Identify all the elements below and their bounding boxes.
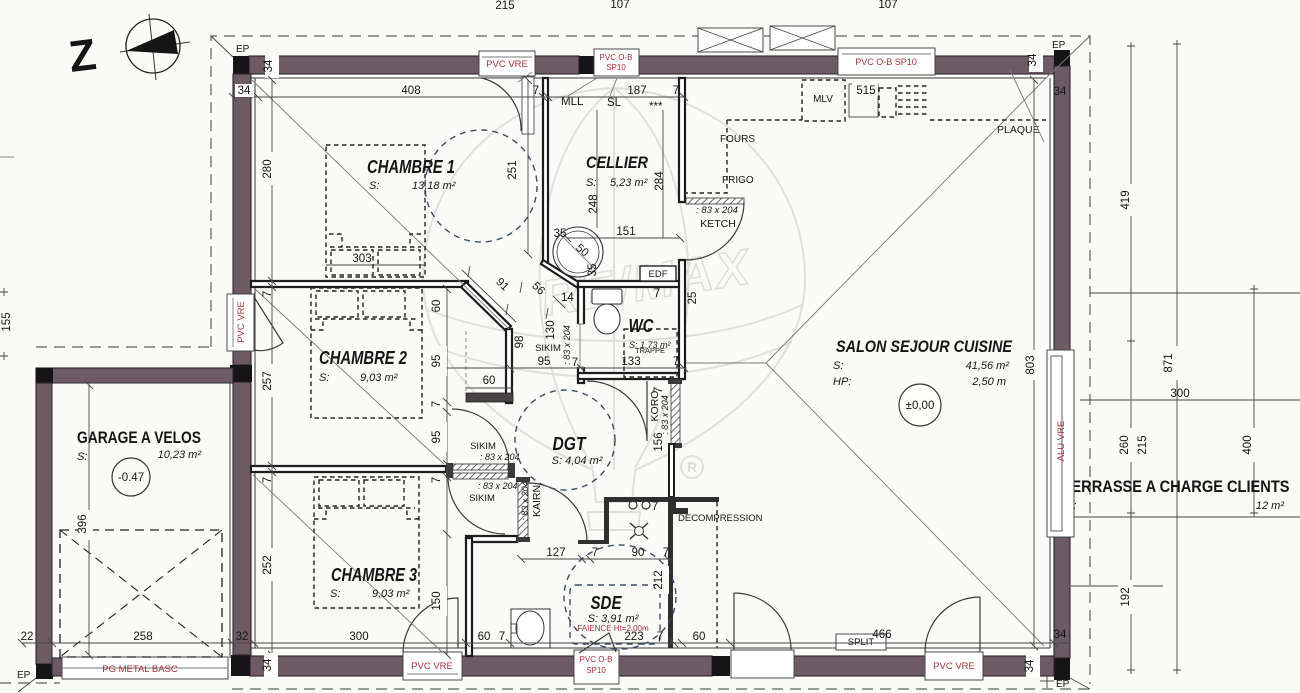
- svg-text:S:: S:: [77, 451, 87, 463]
- svg-text:215: 215: [1137, 435, 1149, 454]
- svg-text:SDE: SDE: [591, 593, 623, 613]
- svg-text:107: 107: [610, 0, 629, 11]
- svg-text:SIKIM: SIKIM: [470, 441, 496, 452]
- svg-text:FOURS: FOURS: [720, 134, 755, 145]
- svg-text:13,18 m²: 13,18 m²: [412, 180, 456, 192]
- svg-text:151: 151: [616, 226, 635, 238]
- svg-text:EP: EP: [17, 670, 31, 681]
- svg-text:34: 34: [262, 658, 274, 671]
- svg-text:: 83 x 204: : 83 x 204: [480, 452, 520, 462]
- svg-text:7: 7: [673, 85, 679, 97]
- svg-text:PG METAL BASC: PG METAL BASC: [102, 664, 178, 675]
- svg-text:S:: S:: [369, 180, 379, 192]
- svg-text:SALON SEJOUR CUISINE: SALON SEJOUR CUISINE: [836, 338, 1013, 356]
- svg-text:60: 60: [693, 631, 706, 643]
- svg-text:127: 127: [546, 547, 565, 559]
- svg-text:7: 7: [592, 547, 598, 559]
- svg-text:34: 34: [1054, 629, 1067, 641]
- svg-text:35: 35: [587, 264, 599, 277]
- svg-text:34: 34: [238, 85, 251, 97]
- svg-text:7: 7: [431, 401, 443, 407]
- svg-text:41,56 m²: 41,56 m²: [966, 360, 1010, 372]
- svg-text:PVC O-B: PVC O-B: [600, 53, 633, 62]
- svg-text:25: 25: [687, 292, 699, 305]
- svg-text:280: 280: [262, 159, 274, 178]
- svg-text:S: 1,73 m²: S: 1,73 m²: [629, 340, 672, 350]
- svg-text:12 m²: 12 m²: [1256, 500, 1284, 512]
- svg-text:300: 300: [1170, 388, 1189, 400]
- svg-text:7: 7: [499, 631, 505, 643]
- svg-text:515: 515: [856, 85, 875, 97]
- svg-text:803: 803: [1025, 355, 1037, 374]
- svg-text:EDF: EDF: [649, 269, 668, 280]
- svg-text:215: 215: [495, 0, 514, 12]
- svg-text:PVC O-B: PVC O-B: [580, 655, 613, 664]
- svg-text:EP: EP: [1056, 679, 1070, 690]
- svg-text:22: 22: [21, 631, 34, 643]
- svg-text:PVC O-B SP10: PVC O-B SP10: [855, 57, 917, 67]
- svg-text:KETCH: KETCH: [700, 218, 736, 230]
- svg-text:SIKIM: SIKIM: [535, 343, 561, 354]
- svg-text:DGT: DGT: [553, 434, 588, 454]
- svg-text:7: 7: [652, 501, 658, 513]
- svg-text:: 83 x 204: : 83 x 204: [520, 481, 530, 521]
- svg-text:SIKIM: SIKIM: [469, 493, 495, 504]
- svg-text:95: 95: [538, 356, 551, 368]
- svg-text:7: 7: [533, 85, 539, 97]
- svg-text:419: 419: [1120, 190, 1132, 209]
- svg-text:258: 258: [133, 631, 152, 643]
- svg-text:PVC VRE: PVC VRE: [411, 661, 453, 672]
- svg-text:7: 7: [654, 288, 660, 300]
- svg-text:CHAMBRE 1: CHAMBRE 1: [367, 157, 455, 177]
- svg-text:SPLIT: SPLIT: [848, 637, 875, 648]
- svg-text:396: 396: [77, 514, 89, 533]
- svg-text:98: 98: [514, 336, 526, 349]
- svg-text:60: 60: [478, 631, 491, 643]
- svg-text:PVC VRE: PVC VRE: [236, 301, 247, 343]
- svg-text:7: 7: [663, 547, 669, 559]
- svg-text:14: 14: [561, 292, 574, 304]
- svg-text:PVC VRE: PVC VRE: [486, 59, 528, 70]
- svg-text:187: 187: [627, 85, 646, 97]
- svg-text:60: 60: [483, 375, 496, 387]
- svg-text:EP: EP: [236, 44, 250, 55]
- svg-text:-0.47: -0.47: [118, 472, 144, 484]
- svg-text:CELLIER: CELLIER: [586, 153, 649, 172]
- svg-text:95: 95: [431, 431, 443, 444]
- svg-text:7: 7: [262, 477, 274, 483]
- svg-text:: 83 x 204: : 83 x 204: [562, 325, 572, 365]
- svg-text:5,23 m²: 5,23 m²: [610, 177, 648, 189]
- svg-text:MLL: MLL: [561, 96, 584, 108]
- svg-text:155: 155: [1, 312, 13, 331]
- svg-text:SL: SL: [607, 97, 622, 109]
- svg-text:: 83 x 204: : 83 x 204: [660, 395, 670, 435]
- svg-text:S: 4,04 m²: S: 4,04 m²: [552, 455, 603, 467]
- svg-text:252: 252: [262, 555, 274, 574]
- svg-text:***: ***: [649, 101, 663, 113]
- svg-text:EP: EP: [1052, 40, 1066, 51]
- svg-text:7: 7: [657, 631, 663, 643]
- svg-text:257: 257: [262, 371, 274, 390]
- svg-text:GARAGE A VELOS: GARAGE A VELOS: [77, 428, 201, 447]
- svg-text:34: 34: [263, 59, 275, 72]
- svg-text:192: 192: [1120, 587, 1132, 606]
- svg-text:90: 90: [632, 547, 645, 559]
- svg-text:223: 223: [624, 631, 643, 643]
- svg-text:±0,00: ±0,00: [906, 400, 935, 412]
- svg-text:DECOMPRESSION: DECOMPRESSION: [678, 513, 763, 524]
- svg-text:2,50 m: 2,50 m: [971, 376, 1006, 388]
- svg-text:34: 34: [1027, 53, 1039, 66]
- svg-text:34: 34: [1054, 86, 1067, 98]
- svg-text:S:: S:: [833, 360, 843, 372]
- svg-text:303: 303: [352, 253, 371, 265]
- svg-text:PLAQUE: PLAQUE: [997, 124, 1040, 136]
- svg-text:S:: S:: [319, 372, 329, 384]
- svg-text:212: 212: [653, 570, 665, 589]
- svg-text:9,03 m²: 9,03 m²: [372, 588, 410, 600]
- svg-text:35: 35: [554, 228, 567, 240]
- svg-text:SP10: SP10: [586, 666, 606, 675]
- svg-text:32: 32: [236, 631, 249, 643]
- svg-text:7: 7: [572, 357, 578, 369]
- svg-text:: 83 x 204: : 83 x 204: [478, 481, 518, 491]
- svg-text:466: 466: [872, 629, 891, 641]
- svg-text:871: 871: [1163, 353, 1175, 372]
- svg-text:CHAMBRE 2: CHAMBRE 2: [319, 348, 407, 368]
- svg-text:FRIGO: FRIGO: [722, 175, 754, 186]
- svg-text:7: 7: [673, 356, 679, 368]
- svg-text:KAIRN: KAIRN: [531, 485, 543, 517]
- svg-text:9,03 m²: 9,03 m²: [360, 372, 398, 384]
- svg-text:156: 156: [653, 432, 665, 451]
- svg-text:PVC VRE: PVC VRE: [933, 661, 975, 672]
- svg-text:300: 300: [349, 631, 368, 643]
- svg-text:7: 7: [653, 387, 665, 393]
- svg-text:: 83 x 204: : 83 x 204: [696, 205, 738, 216]
- svg-text:R: R: [687, 459, 697, 475]
- svg-text:34: 34: [1024, 659, 1036, 672]
- svg-text:TERRASSE A CHARGE CLIENTS: TERRASSE A CHARGE CLIENTS: [1063, 477, 1290, 496]
- svg-text:WC: WC: [629, 316, 655, 336]
- svg-text:260: 260: [1119, 435, 1131, 454]
- svg-text:150: 150: [431, 591, 443, 610]
- svg-text:7: 7: [262, 291, 274, 297]
- svg-text:S:: S:: [586, 177, 596, 189]
- svg-text:408: 408: [401, 85, 420, 97]
- svg-text:130: 130: [545, 320, 557, 339]
- svg-text:CHAMBRE 3: CHAMBRE 3: [331, 565, 417, 585]
- svg-text:S:: S:: [330, 588, 340, 600]
- svg-text:SP10: SP10: [606, 63, 626, 72]
- svg-text:10,23 m²: 10,23 m²: [158, 449, 202, 461]
- svg-text:95: 95: [431, 355, 443, 368]
- svg-text:ALU VRE: ALU VRE: [1056, 421, 1067, 462]
- svg-text:133: 133: [621, 356, 640, 368]
- svg-text:107: 107: [878, 0, 897, 11]
- svg-text:7: 7: [431, 477, 443, 483]
- svg-text:MLV: MLV: [813, 94, 833, 105]
- svg-text:400: 400: [1242, 435, 1254, 454]
- svg-text:HP:: HP:: [833, 376, 851, 388]
- svg-text:248: 248: [588, 194, 600, 213]
- svg-text:284: 284: [654, 171, 666, 191]
- svg-text:251: 251: [507, 160, 519, 179]
- svg-text:60: 60: [431, 300, 443, 313]
